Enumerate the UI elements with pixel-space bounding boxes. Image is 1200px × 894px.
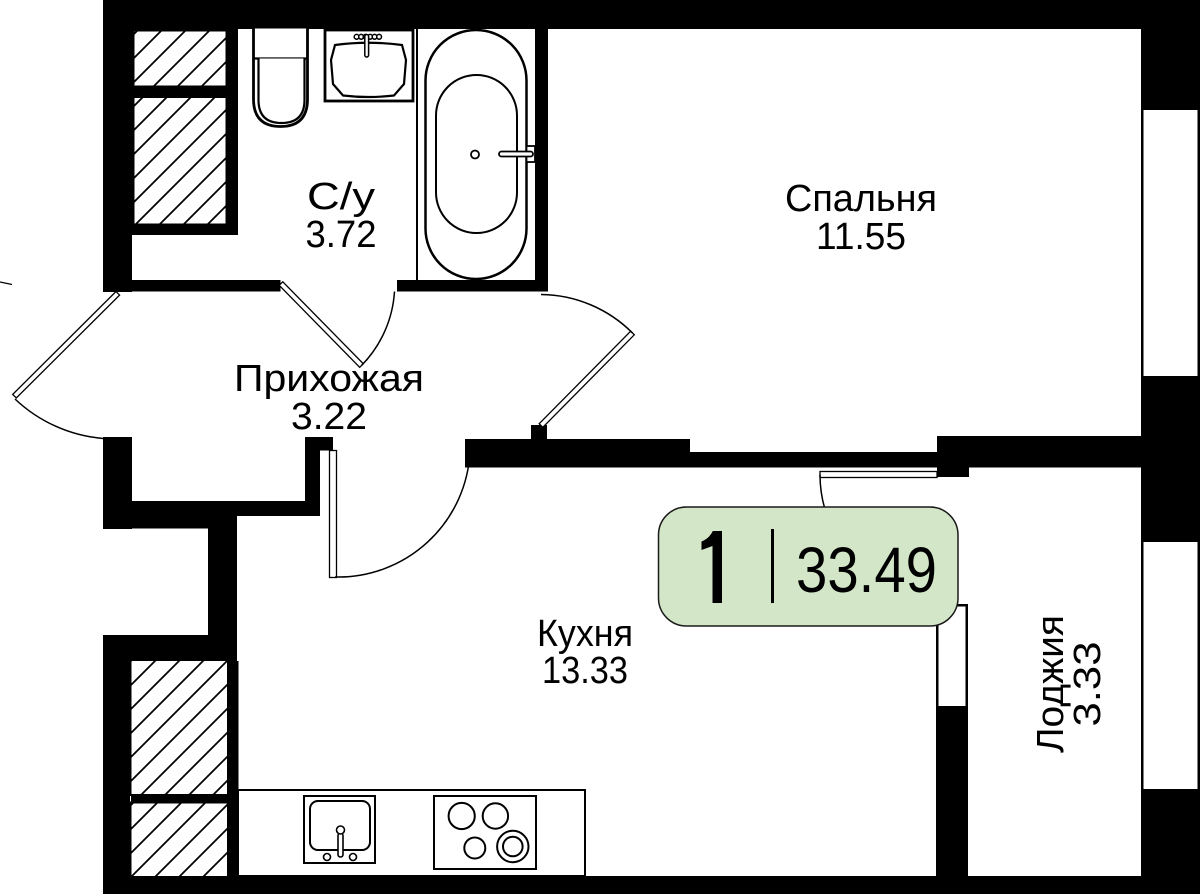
svg-text:3.72: 3.72 bbox=[306, 214, 377, 256]
svg-text:Спальня: Спальня bbox=[785, 178, 937, 220]
svg-text:Прихожая: Прихожая bbox=[234, 358, 424, 400]
svg-text:3.33: 3.33 bbox=[1067, 642, 1109, 727]
svg-text:3.22: 3.22 bbox=[291, 396, 367, 438]
svg-text:33.49: 33.49 bbox=[796, 534, 937, 606]
svg-text:11.55: 11.55 bbox=[816, 216, 906, 258]
svg-text:Лоджия: Лоджия bbox=[1030, 615, 1072, 753]
svg-text:С/у: С/у bbox=[307, 176, 375, 218]
svg-text:13.33: 13.33 bbox=[542, 650, 628, 692]
svg-text:Кухня: Кухня bbox=[537, 613, 633, 655]
